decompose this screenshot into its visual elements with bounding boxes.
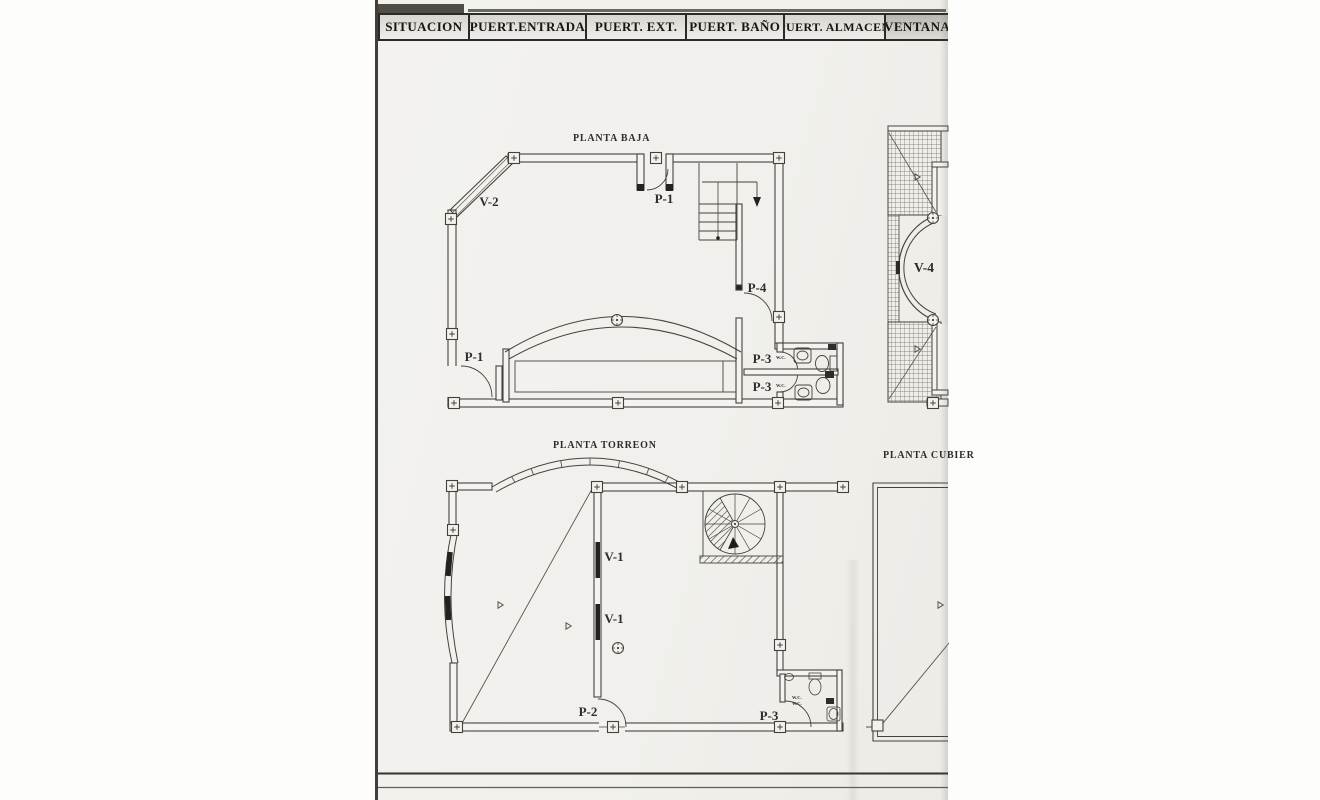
label-p1-bottom: P-1 bbox=[465, 349, 484, 364]
planta-baja-plan bbox=[447, 153, 843, 408]
label-p4: P-4 bbox=[748, 280, 767, 295]
label-p3-torreon: P-3 bbox=[760, 708, 779, 723]
torreon-walls bbox=[449, 483, 845, 732]
label-p3-lower: P-3 bbox=[753, 379, 772, 394]
planta-cubierta-plan bbox=[866, 483, 949, 741]
label-p1-top: P-1 bbox=[655, 191, 674, 206]
spiral-staircase bbox=[700, 491, 783, 563]
label-p3-upper: P-3 bbox=[753, 351, 772, 366]
label-wc-lower: W.C. bbox=[776, 383, 786, 388]
fixture-dark-upper bbox=[828, 344, 836, 350]
planta-torreon-plan bbox=[445, 458, 846, 732]
label-v2: V-2 bbox=[479, 194, 498, 209]
label-wc-upper: W.C. bbox=[776, 355, 786, 360]
page-edge-shadow bbox=[940, 0, 948, 800]
curved-bar-counter bbox=[503, 317, 741, 403]
label-wc-torreon-2: W.C. bbox=[792, 701, 802, 706]
label-v1-lower: V-1 bbox=[604, 611, 623, 626]
label-wc-torreon-1: W.C. bbox=[792, 695, 802, 700]
planta-baja-title: PLANTA BAJA bbox=[573, 133, 650, 144]
left-window-bar-2 bbox=[448, 596, 449, 620]
left-window-bar-1 bbox=[448, 552, 450, 576]
torreon-diagonal-line bbox=[461, 489, 592, 725]
torreon-left-arc-wall bbox=[445, 530, 459, 663]
baja-staircase bbox=[699, 163, 761, 240]
drawing-svg: PLANTA BAJA V-2 P-1 P-4 P-3 P-3 W.C. W.C… bbox=[0, 0, 1320, 800]
spiral-stair-arrow bbox=[728, 537, 739, 549]
sheet-frame bbox=[378, 774, 948, 788]
planta-torreon-title: PLANTA TORREON bbox=[553, 440, 657, 451]
fixture-dark-lower bbox=[825, 371, 834, 378]
label-v4: V-4 bbox=[914, 260, 934, 275]
paper-crease bbox=[846, 560, 860, 800]
cubierta-diagonal-line bbox=[879, 643, 949, 728]
label-p2: P-2 bbox=[579, 704, 598, 719]
fixture-dark-torreon bbox=[826, 698, 834, 704]
column-markers bbox=[446, 153, 939, 733]
label-v1-upper: V-1 bbox=[604, 549, 623, 564]
planta-cubierta-title: PLANTA CUBIER bbox=[883, 450, 975, 461]
stair-direction-arrow bbox=[753, 197, 761, 207]
v4-window-mark bbox=[896, 261, 900, 274]
